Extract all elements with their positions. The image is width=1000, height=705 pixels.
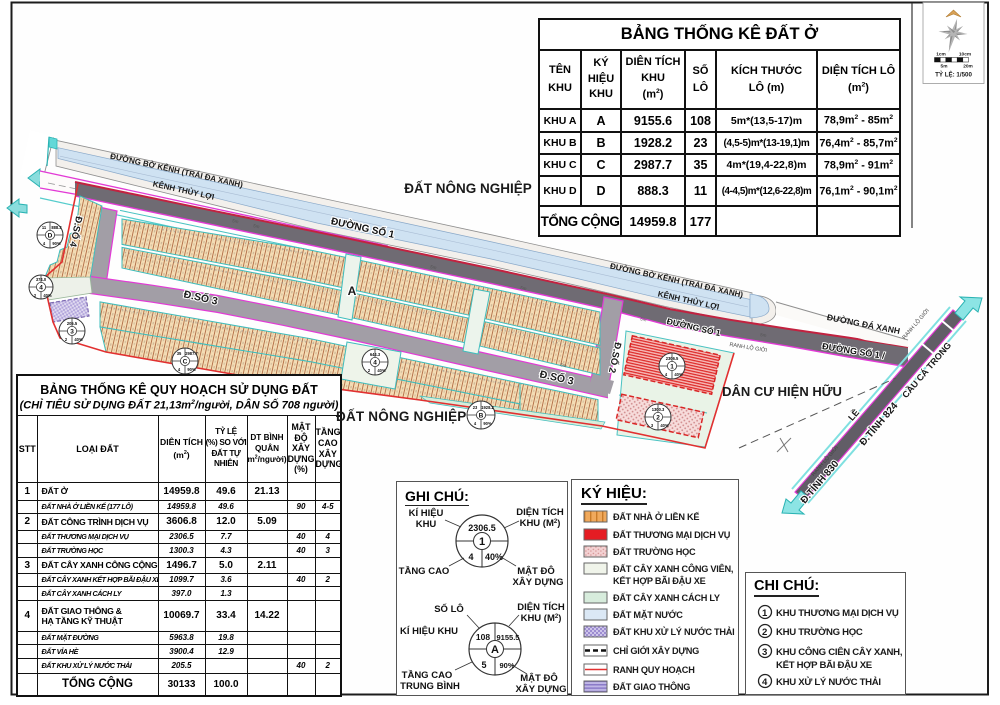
svg-text:ĐẤT NÔNG NGHIỆP: ĐẤT NÔNG NGHIỆP (404, 181, 532, 196)
svg-text:3: 3 (762, 647, 767, 658)
svg-text:KẾT HỢP BÃI ĐẬU XE: KẾT HỢP BÃI ĐẬU XE (776, 659, 873, 671)
svg-text:40%: 40% (660, 423, 669, 428)
svg-text:5m: 5m (941, 64, 948, 70)
svg-text:40%: 40% (485, 552, 503, 562)
svg-text:ĐẤT THƯƠNG MẠI DỊCH VỤ: ĐẤT THƯƠNG MẠI DỊCH VỤ (613, 530, 731, 540)
svg-text:1cm: 1cm (936, 52, 946, 58)
svg-text:ĐẤT NHÀ Ở LIỀN KẾ: ĐẤT NHÀ Ở LIỀN KẾ (613, 511, 699, 522)
svg-text:B: B (479, 412, 484, 419)
svg-text:1928.2: 1928.2 (481, 405, 494, 410)
svg-text:1: 1 (479, 536, 485, 548)
svg-text:2: 2 (656, 414, 660, 421)
svg-text:108: 108 (476, 632, 490, 642)
svg-text:ĐẤT TRƯỜNG HỌC: ĐẤT TRƯỜNG HỌC (613, 546, 696, 557)
svg-text:40%: 40% (377, 368, 386, 373)
svg-text:2306.5: 2306.5 (468, 523, 496, 533)
svg-text:MẬT ĐÔ: MẬT ĐÔ (520, 672, 557, 684)
svg-text:1: 1 (670, 363, 674, 370)
svg-text:1300.3: 1300.3 (652, 407, 665, 412)
svg-text:KHU TRƯỜNG HỌC: KHU TRƯỜNG HỌC (776, 626, 863, 638)
svg-text:888.3: 888.3 (51, 225, 62, 230)
svg-text:KHU CÔNG CIÊN CÂY XANH,: KHU CÔNG CIÊN CÂY XANH, (776, 646, 903, 658)
svg-text:KHU (M2): KHU (M2) (520, 518, 561, 529)
svg-text:90%: 90% (187, 367, 196, 372)
svg-text:D: D (48, 232, 53, 239)
svg-text:KẾT HỢP BÃI ĐẬU XE: KẾT HỢP BÃI ĐẬU XE (613, 575, 706, 586)
svg-text:KÍ HIỆU: KÍ HIỆU (409, 507, 444, 519)
svg-text:4: 4 (373, 359, 377, 366)
svg-text:40%: 40% (74, 337, 83, 342)
svg-text:4: 4 (468, 552, 473, 562)
svg-text:DIỆN TÍCH: DIỆN TÍCH (516, 506, 564, 518)
svg-text:C: C (183, 358, 188, 365)
svg-text:KÍ HIỆU KHU: KÍ HIỆU KHU (400, 625, 458, 637)
svg-text:KHU (M2): KHU (M2) (521, 613, 562, 624)
svg-text:TỶ LỆ: 1/500: TỶ LỆ: 1/500 (935, 71, 972, 79)
svg-text:90%: 90% (483, 421, 492, 426)
svg-text:4: 4 (39, 284, 43, 291)
svg-text:CHỈ GIỚI XÂY DỰNG: CHỈ GIỚI XÂY DỰNG (613, 645, 699, 656)
svg-text:TẦNG CAO: TẦNG CAO (402, 670, 453, 681)
svg-text:MẬT ĐÔ: MẬT ĐÔ (517, 565, 554, 577)
svg-text:ĐẤT CÂY XANH CÁCH LY: ĐẤT CÂY XANH CÁCH LY (613, 592, 720, 603)
svg-text:TẦNG CAO: TẦNG CAO (399, 566, 450, 577)
svg-text:35: 35 (177, 351, 182, 356)
svg-text:TRUNG BÌNH: TRUNG BÌNH (400, 681, 460, 692)
svg-text:2987.7: 2987.7 (185, 351, 198, 356)
svg-text:3: 3 (70, 328, 74, 335)
svg-text:644.3: 644.3 (370, 352, 381, 357)
svg-text:11: 11 (42, 225, 47, 230)
svg-text:ĐẤT GIAO THÔNG: ĐẤT GIAO THÔNG (613, 681, 690, 692)
svg-text:9155.5: 9155.5 (497, 633, 520, 642)
svg-text:XÂY DỰNG: XÂY DỰNG (513, 576, 564, 588)
svg-text:ĐẤT MẶT NƯỚC: ĐẤT MẶT NƯỚC (613, 609, 683, 620)
svg-text:40%: 40% (674, 372, 683, 377)
svg-text:20m: 20m (963, 64, 973, 70)
svg-text:KHU XỬ LÝ NƯỚC THẢI: KHU XỬ LÝ NƯỚC THẢI (776, 676, 881, 688)
svg-text:5: 5 (481, 660, 486, 670)
svg-text:XÂY DỰNG: XÂY DỰNG (516, 683, 567, 695)
svg-text:ĐẤT CÂY XANH CÔNG VIÊN,: ĐẤT CÂY XANH CÔNG VIÊN, (613, 563, 733, 574)
svg-text:2: 2 (762, 627, 767, 638)
svg-text:40%: 40% (43, 293, 52, 298)
svg-text:2306.5: 2306.5 (666, 356, 679, 361)
svg-text:SỐ LÔ: SỐ LÔ (434, 603, 464, 615)
svg-text:374.0: 374.0 (36, 277, 47, 282)
svg-text:ĐẤT KHU XỬ LÝ NƯỚC THẢI: ĐẤT KHU XỬ LÝ NƯỚC THẢI (613, 626, 734, 637)
svg-text:DIỆN TÍCH: DIỆN TÍCH (517, 601, 565, 613)
svg-text:90%: 90% (52, 241, 61, 246)
svg-text:KHU THƯƠNG MẠI DỊCH VỤ: KHU THƯƠNG MẠI DỊCH VỤ (776, 608, 899, 619)
svg-text:KHU: KHU (416, 519, 437, 530)
svg-text:205.5: 205.5 (67, 321, 78, 326)
svg-text:23: 23 (473, 405, 478, 410)
svg-text:DÂN CƯ HIỆN HỮU: DÂN CƯ HIỆN HỮU (722, 384, 842, 399)
svg-text:RANH QUY HOẠCH: RANH QUY HOẠCH (613, 665, 695, 675)
svg-text:10cm: 10cm (959, 52, 971, 58)
svg-text:A: A (491, 644, 499, 656)
svg-text:A: A (348, 284, 357, 298)
